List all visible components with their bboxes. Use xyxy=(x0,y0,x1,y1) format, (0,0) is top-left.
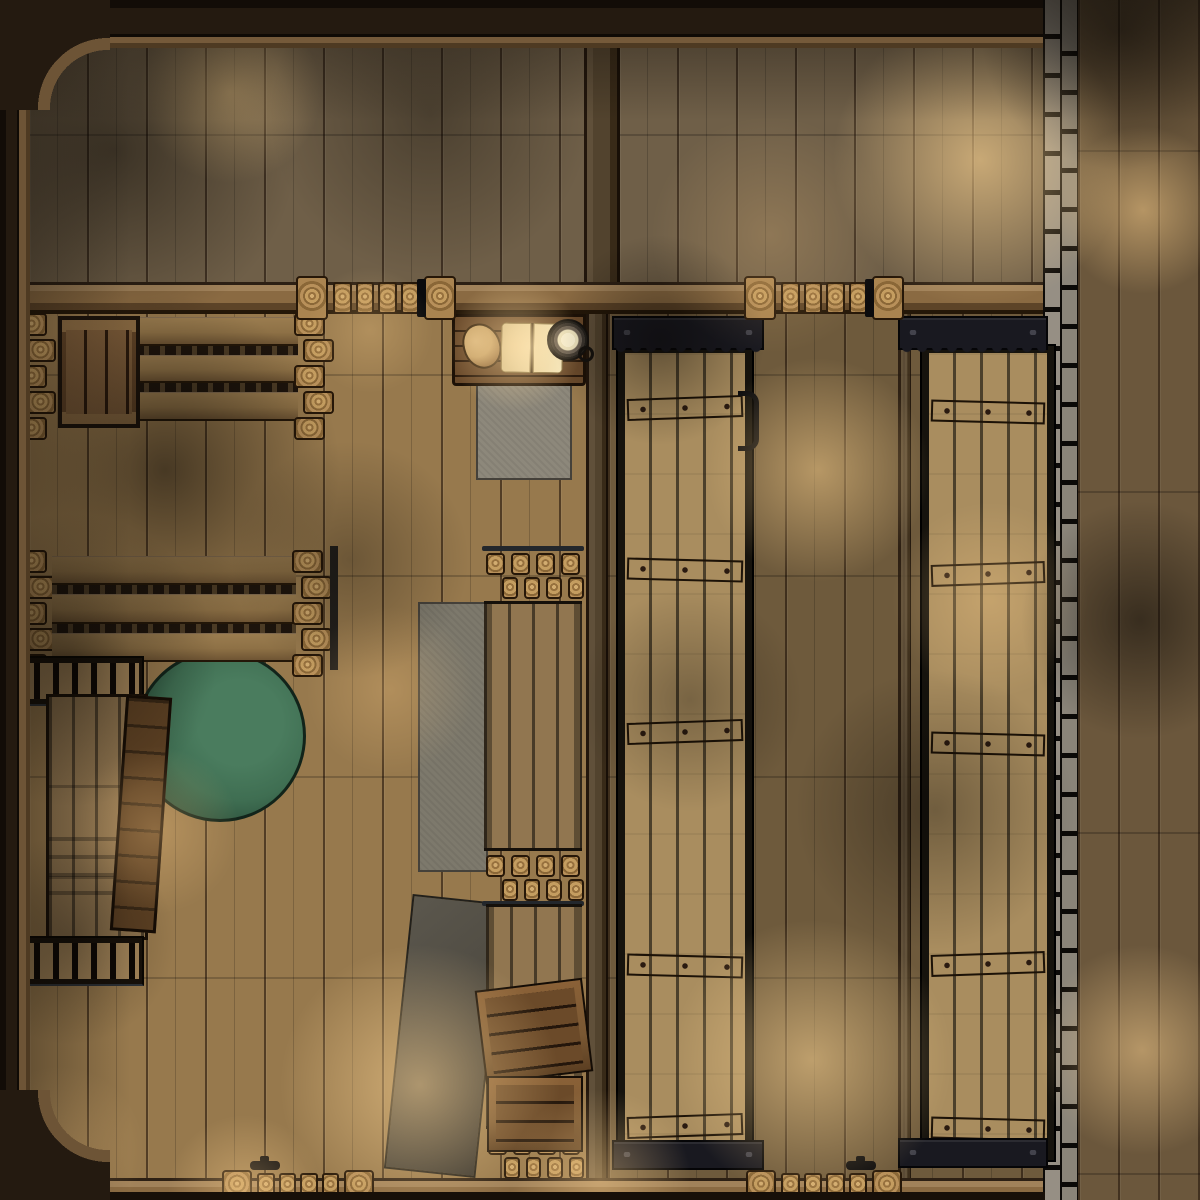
cleat-row xyxy=(502,577,584,599)
log-end xyxy=(301,628,332,651)
cleat-block xyxy=(502,577,518,599)
log-end xyxy=(303,391,334,414)
hull-frame-corner xyxy=(0,1090,110,1200)
cleat-block xyxy=(502,879,518,901)
book-page-left xyxy=(501,322,532,373)
long-table xyxy=(52,556,296,662)
hatch-brace xyxy=(627,953,744,978)
door-planks xyxy=(331,276,421,320)
door-plank xyxy=(781,282,800,314)
candle-dish[interactable] xyxy=(547,319,589,361)
log-end xyxy=(301,576,332,599)
cleat-block xyxy=(546,577,562,599)
cleat-block xyxy=(569,1157,585,1179)
hatch-brace xyxy=(627,395,744,421)
crate-on-walkway[interactable] xyxy=(487,1076,583,1152)
cleat-block xyxy=(561,855,580,877)
log-end xyxy=(303,339,334,362)
coin-pouch[interactable] xyxy=(458,319,506,373)
hatch-hinge-plate xyxy=(898,1138,1048,1168)
cleat-block xyxy=(511,855,530,877)
stone-column xyxy=(1062,0,1077,1200)
crate-planks xyxy=(66,330,132,414)
sliding-wall-door[interactable] xyxy=(744,276,904,320)
cleat-row xyxy=(504,1157,584,1179)
table-end-rail xyxy=(330,546,338,670)
crate-planks xyxy=(485,988,584,1074)
hatch-brace xyxy=(627,719,744,745)
log-end xyxy=(292,550,323,573)
writing-desk xyxy=(452,314,586,386)
upper-cabin-floor xyxy=(28,46,1043,286)
cleat-block xyxy=(511,553,530,575)
table-plank xyxy=(128,392,298,421)
walkway-rail xyxy=(482,546,584,551)
cleat-block xyxy=(536,553,555,575)
cargo-hatch-door[interactable] xyxy=(922,346,1054,1160)
hatch-brace xyxy=(931,400,1046,425)
cleat-block xyxy=(546,879,562,901)
long-table xyxy=(128,317,298,421)
stud-strip xyxy=(128,383,298,392)
log-seat-stack xyxy=(292,550,332,666)
door-planks xyxy=(779,276,869,320)
gangplank-walkway xyxy=(482,546,584,906)
log-end xyxy=(294,417,325,440)
table-plank xyxy=(128,317,298,346)
hull-frame-top xyxy=(0,0,1043,48)
stud-strip xyxy=(52,585,296,594)
crate-planks xyxy=(496,1085,574,1143)
cleat-block xyxy=(547,1157,563,1179)
door-plank xyxy=(826,282,845,314)
cleat-block xyxy=(568,879,584,901)
hold-divider-beam xyxy=(898,286,911,1200)
cleat-block xyxy=(486,553,505,575)
stud-strip xyxy=(52,624,296,633)
hatch-pull-handle[interactable] xyxy=(738,391,759,451)
door-post xyxy=(744,276,776,320)
bench-row xyxy=(16,936,144,986)
sliding-wall-door[interactable] xyxy=(296,276,456,320)
hull-frame-corner xyxy=(0,0,110,110)
door-latch[interactable] xyxy=(250,1161,280,1170)
door-post xyxy=(424,276,456,320)
door-post xyxy=(296,276,328,320)
hatch-brace xyxy=(627,557,744,582)
tilted-crate-on-walkway[interactable] xyxy=(475,978,594,1084)
cabin-divider-beam xyxy=(584,40,620,288)
cleat-block xyxy=(561,553,580,575)
log-end xyxy=(292,602,323,625)
log-end xyxy=(292,654,323,677)
battlemap-canvas[interactable] xyxy=(0,0,1200,1200)
cargo-hatch-door[interactable] xyxy=(618,346,752,1160)
cleat-block xyxy=(504,1157,520,1179)
hatch-hinge-plate xyxy=(898,316,1048,350)
cleat-row xyxy=(502,879,584,901)
hatch-brace xyxy=(931,561,1046,587)
cleat-block xyxy=(486,855,505,877)
door-plank xyxy=(333,282,352,314)
door-latch[interactable] xyxy=(846,1161,876,1170)
side-corridor-floor xyxy=(1078,0,1200,1200)
door-plank xyxy=(356,282,375,314)
hatch-brace xyxy=(627,1113,744,1139)
stud-strip xyxy=(128,346,298,355)
cleat-row xyxy=(486,855,580,877)
cleat-block xyxy=(536,855,555,877)
cleat-block xyxy=(568,577,584,599)
gray-rug xyxy=(476,380,572,480)
hatch-brace xyxy=(931,951,1046,977)
table-plank xyxy=(128,355,298,384)
cleat-block xyxy=(526,1157,542,1179)
cleat-block xyxy=(524,577,540,599)
hull-frame-left xyxy=(0,0,30,1200)
hatch-hinge-plate xyxy=(612,316,764,350)
hatch-hinge-plate xyxy=(612,1140,764,1170)
gray-runner-rug xyxy=(418,602,488,872)
wooden-crate[interactable] xyxy=(58,316,140,428)
table-plank xyxy=(52,556,296,585)
door-hinge-bar xyxy=(865,279,874,317)
log-seat-stack xyxy=(294,313,334,425)
log-end xyxy=(294,365,325,388)
hull-frame-bottom xyxy=(0,1192,1045,1200)
door-plank xyxy=(378,282,397,314)
walkway-planks xyxy=(484,601,582,851)
cleat-row xyxy=(486,553,580,575)
door-post xyxy=(872,276,904,320)
door-plank xyxy=(804,282,823,314)
cleat-block xyxy=(524,879,540,901)
hatch-brace xyxy=(931,732,1046,757)
door-hinge-bar xyxy=(417,279,426,317)
table-plank xyxy=(52,594,296,623)
